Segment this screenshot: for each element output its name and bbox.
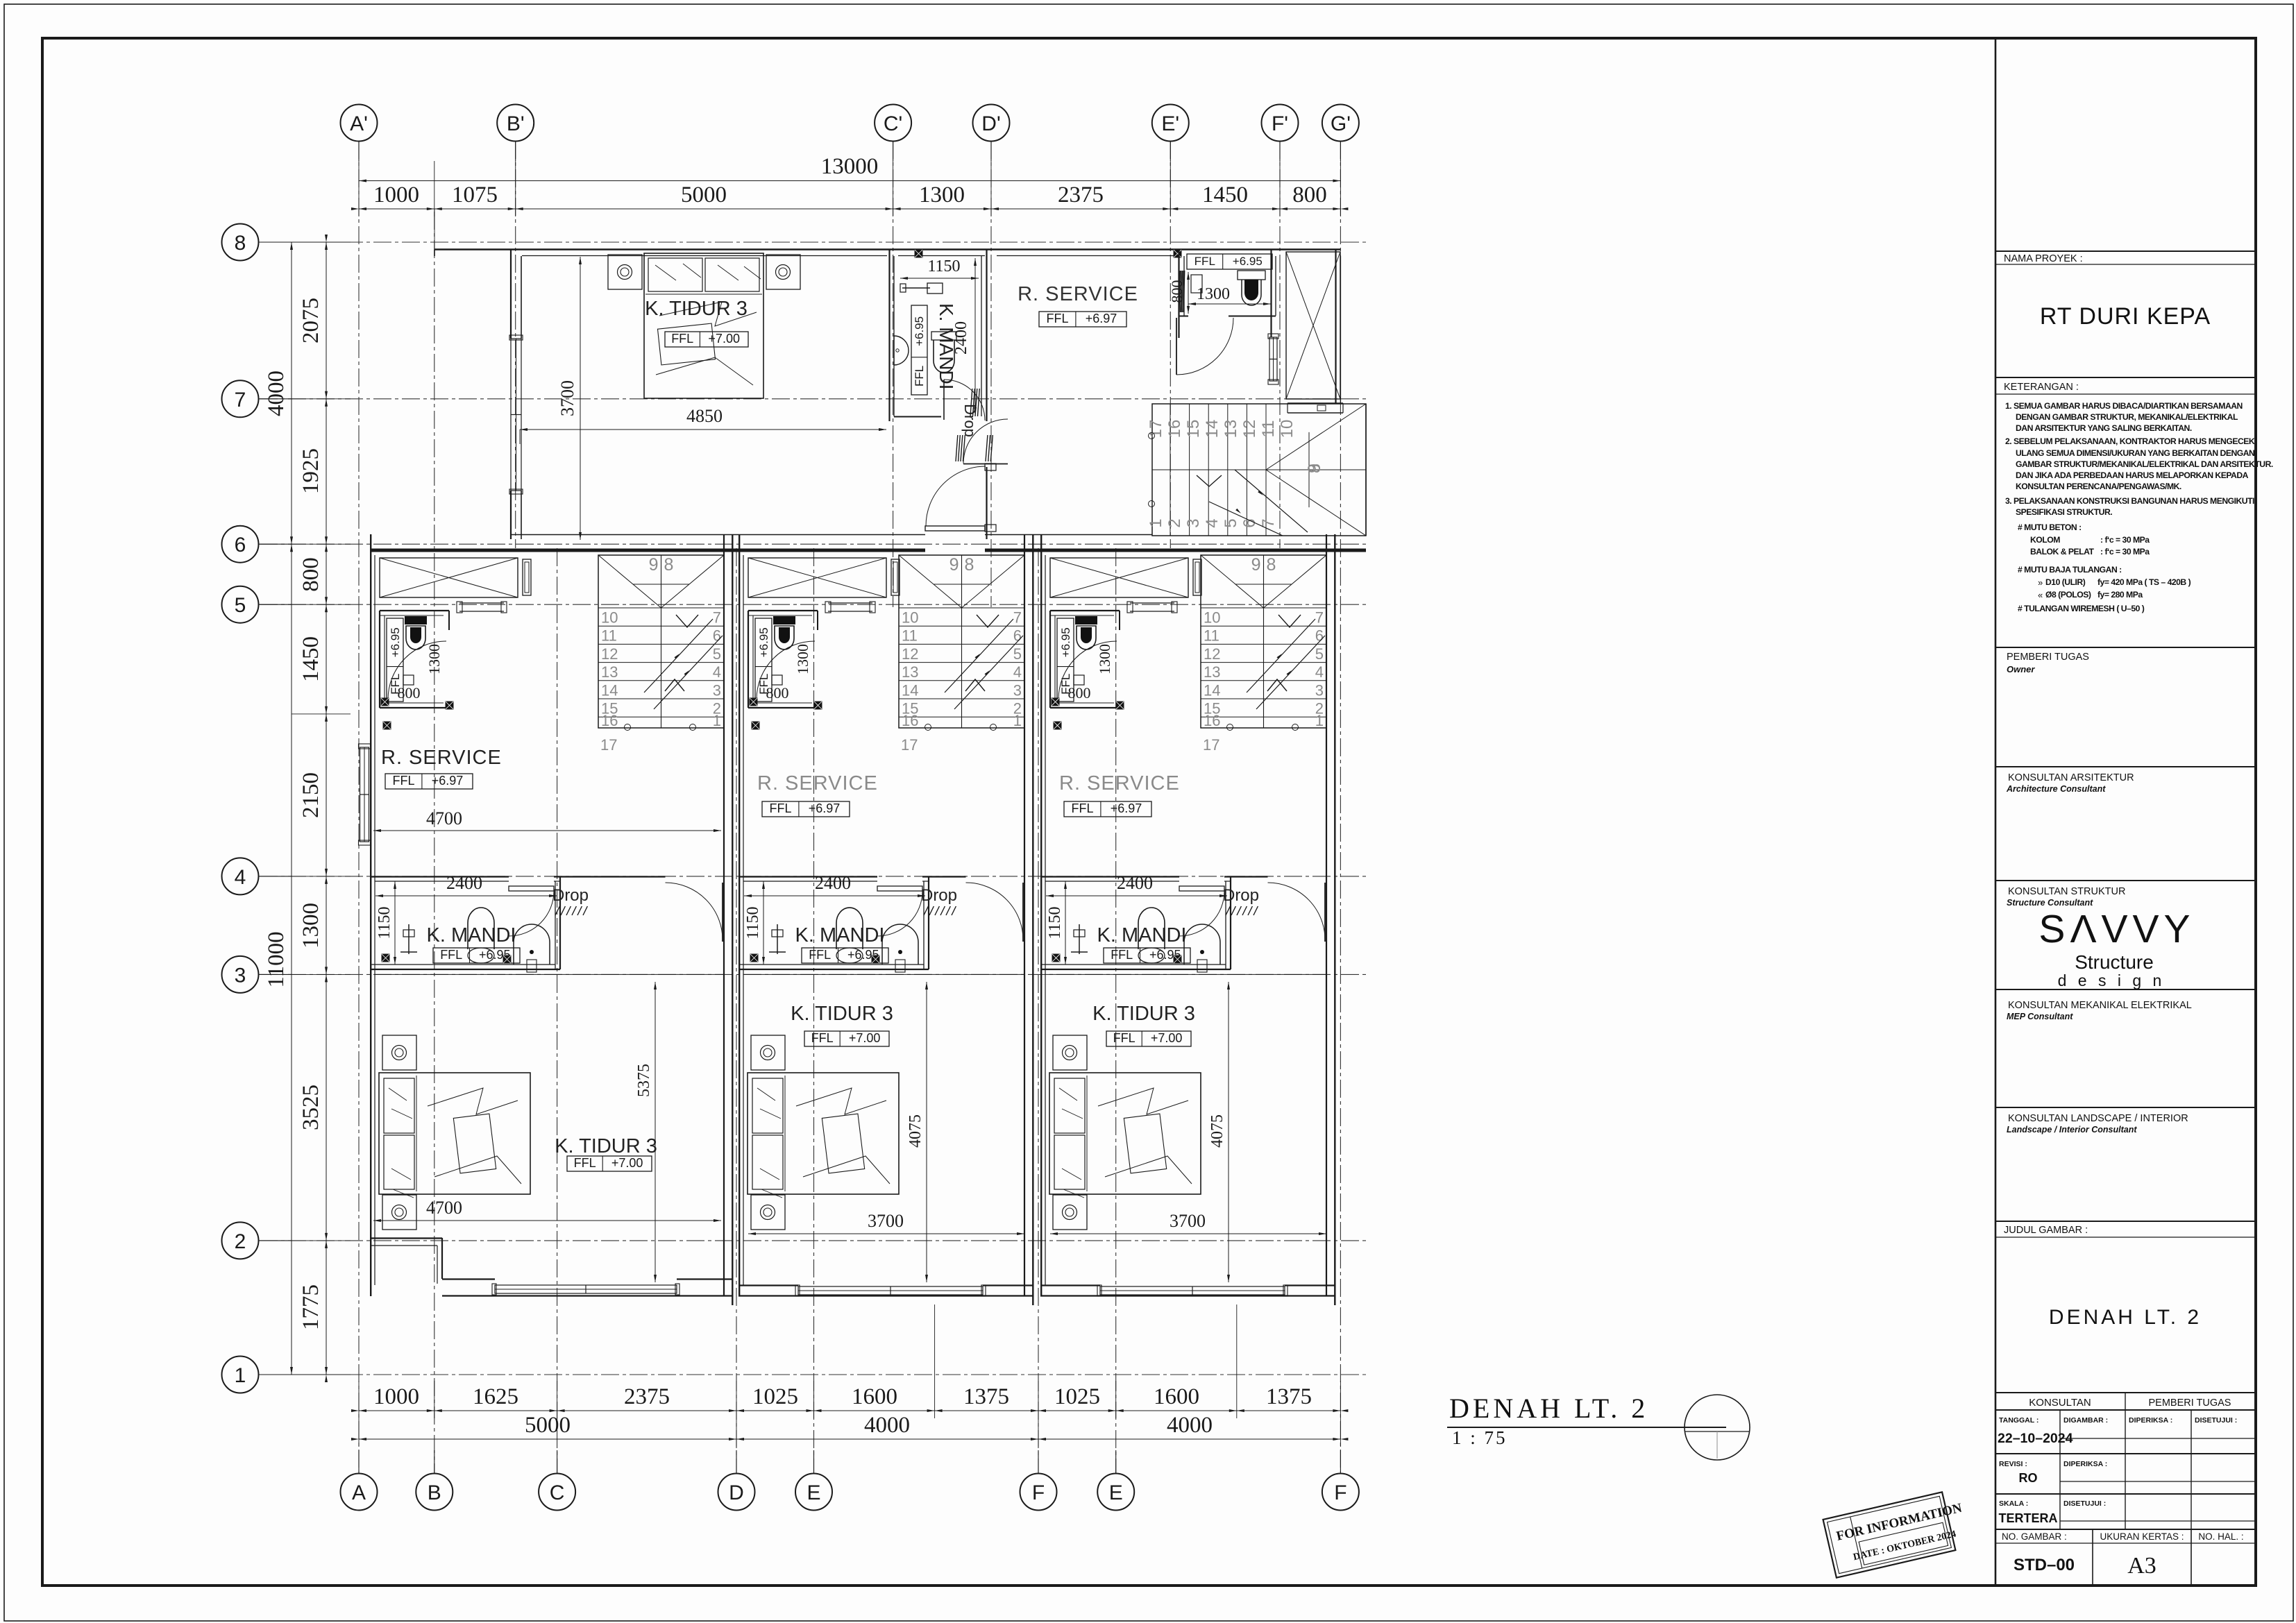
svg-text:d e s i g n: d e s i g n (2058, 971, 2166, 989)
svg-text:+6.97: +6.97 (1086, 312, 1117, 325)
svg-text:E: E (1109, 1481, 1123, 1504)
svg-text:FFL: FFL (1111, 948, 1133, 962)
svg-text:800: 800 (398, 684, 421, 702)
svg-text:KONSULTAN PERENCANA/PENGAWAS/M: KONSULTAN PERENCANA/PENGAWAS/MK. (2016, 482, 2181, 491)
svg-text:5375: 5375 (635, 1064, 653, 1097)
svg-text:F': F' (1272, 112, 1288, 135)
svg-text:K. TIDUR 3: K. TIDUR 3 (1092, 1003, 1195, 1025)
svg-text:9: 9 (1251, 555, 1261, 575)
svg-text:12: 12 (902, 645, 918, 663)
svg-text:+7.00: +7.00 (849, 1031, 881, 1045)
svg-text:KONSULTAN MEKANIKAL ELEKTRIKAL: KONSULTAN MEKANIKAL ELEKTRIKAL (2008, 1000, 2192, 1011)
svg-text:4: 4 (1013, 663, 1022, 681)
svg-text:R. SERVICE: R. SERVICE (757, 772, 878, 794)
svg-text:10: 10 (1204, 609, 1220, 627)
svg-text:7: 7 (1013, 609, 1022, 627)
svg-text:NAMA PROYEK :: NAMA PROYEK : (2004, 253, 2083, 264)
svg-text:14: 14 (902, 681, 918, 699)
svg-text:1150: 1150 (927, 257, 960, 275)
svg-text:14: 14 (1203, 420, 1222, 439)
svg-text:4: 4 (235, 866, 246, 889)
svg-text:KONSULTAN STRUKTUR: KONSULTAN STRUKTUR (2008, 886, 2125, 897)
svg-text:2: 2 (235, 1230, 246, 1253)
svg-text:1300: 1300 (1096, 644, 1113, 674)
svg-text:15: 15 (1184, 420, 1203, 439)
svg-text:16: 16 (1204, 712, 1220, 729)
svg-text:DENAH LT. 2: DENAH LT. 2 (1449, 1393, 1648, 1424)
svg-text:fy= 420 MPa ( TS – 420B ): fy= 420 MPa ( TS – 420B ) (2097, 577, 2191, 587)
svg-text:FFL: FFL (913, 366, 926, 386)
svg-text:6: 6 (235, 534, 246, 556)
svg-text:2400: 2400 (1117, 873, 1153, 893)
svg-text:12: 12 (601, 645, 618, 663)
svg-text:+6.95: +6.95 (913, 316, 926, 346)
svg-text:5: 5 (235, 594, 246, 617)
svg-text:12: 12 (1204, 645, 1220, 663)
svg-text:5: 5 (713, 645, 721, 663)
svg-text:14: 14 (601, 681, 618, 699)
svg-text:R. SERVICE: R. SERVICE (1059, 772, 1180, 794)
svg-text:FFL: FFL (1195, 255, 1215, 268)
svg-text:2400: 2400 (952, 321, 970, 355)
svg-text:K. TIDUR 3: K. TIDUR 3 (791, 1003, 893, 1025)
svg-text:1600: 1600 (1154, 1384, 1199, 1409)
svg-text:2150: 2150 (298, 772, 323, 818)
svg-text:3: 3 (713, 681, 721, 699)
svg-text:TANGGAL :: TANGGAL : (1999, 1416, 2038, 1425)
svg-text:: f‘c = 30 MPa: : f‘c = 30 MPa (2100, 547, 2150, 556)
svg-text:5: 5 (1013, 645, 1022, 663)
svg-text:8: 8 (1267, 555, 1276, 575)
svg-text:1150: 1150 (1046, 906, 1064, 939)
svg-text:8: 8 (1305, 464, 1324, 473)
svg-text:4075: 4075 (1208, 1114, 1226, 1148)
svg-text:SKALA :: SKALA : (1999, 1499, 2028, 1508)
svg-text:FFL: FFL (809, 948, 831, 962)
svg-text:F: F (1334, 1481, 1347, 1504)
svg-text:Landscape / Interior Consul: Landscape / Interior Consultant (2007, 1125, 2137, 1135)
svg-text:DAN ARSITEKTUR YANG SALING BER: DAN ARSITEKTUR YANG SALING BERKAITAN. (2016, 423, 2192, 433)
svg-text:3: 3 (235, 964, 246, 987)
svg-text:TERTERA: TERTERA (1999, 1511, 2058, 1525)
svg-text:4075: 4075 (906, 1114, 925, 1148)
svg-text:1300: 1300 (919, 182, 965, 207)
svg-text:K. MANDI: K. MANDI (427, 924, 516, 946)
svg-text:B': B' (507, 112, 525, 135)
svg-text:1: 1 (1315, 712, 1324, 729)
svg-text:Owner: Owner (2007, 664, 2035, 674)
svg-text:13: 13 (902, 663, 918, 681)
svg-text:«: « (2038, 590, 2043, 600)
svg-text:3. PELAKSANAAN KONSTRUKSI BANG: 3. PELAKSANAAN KONSTRUKSI BANGUNAN HARUS… (2005, 496, 2254, 506)
svg-text:1450: 1450 (1202, 182, 1248, 207)
svg-text:# TULANGAN WIREMESH ( U–50 ): # TULANGAN WIREMESH ( U–50 ) (2018, 604, 2145, 613)
svg-text:3525: 3525 (298, 1085, 323, 1130)
svg-text:G': G' (1331, 112, 1351, 135)
svg-text:DISETUJUI :: DISETUJUI : (2195, 1416, 2237, 1425)
svg-text:KOLOM: KOLOM (2030, 535, 2060, 545)
svg-text:Ø8 (POLOS): Ø8 (POLOS) (2045, 590, 2091, 600)
svg-text:800: 800 (766, 684, 789, 702)
svg-text:PEMBERI TUGAS: PEMBERI TUGAS (2149, 1397, 2231, 1409)
svg-text:2075: 2075 (298, 298, 323, 343)
svg-text:DISETUJUI :: DISETUJUI : (2063, 1499, 2106, 1508)
svg-text:E: E (807, 1481, 820, 1504)
svg-text:13: 13 (1222, 420, 1240, 439)
svg-text:NO. HAL. :: NO. HAL. : (2198, 1531, 2243, 1542)
svg-text:DIPERIKSA :: DIPERIKSA : (2129, 1416, 2172, 1425)
svg-text:10: 10 (902, 609, 918, 627)
svg-text:K. TIDUR 3: K. TIDUR 3 (555, 1135, 657, 1157)
svg-text:13: 13 (601, 663, 618, 681)
svg-text:9: 9 (649, 555, 659, 575)
svg-text:K. MANDI: K. MANDI (795, 924, 885, 946)
svg-text:A': A' (350, 112, 368, 135)
svg-text:4: 4 (713, 663, 721, 681)
svg-text:DIGAMBAR :: DIGAMBAR : (2063, 1416, 2108, 1425)
svg-text:1: 1 (235, 1364, 246, 1387)
svg-text:17: 17 (600, 736, 617, 754)
svg-text:+6.95: +6.95 (757, 627, 770, 657)
svg-text:1000: 1000 (373, 182, 419, 207)
svg-text:JUDUL GAMBAR :: JUDUL GAMBAR : (2004, 1225, 2088, 1236)
svg-text:800: 800 (1068, 684, 1091, 702)
svg-text:C': C' (884, 112, 902, 135)
svg-text:22–10–2024: 22–10–2024 (1998, 1431, 2073, 1446)
svg-text:FFL: FFL (1113, 1031, 1136, 1045)
svg-text:RT DURI KEPA: RT DURI KEPA (2040, 303, 2211, 330)
svg-text:FFL: FFL (574, 1156, 596, 1170)
svg-text:17: 17 (1147, 420, 1165, 439)
svg-text:FFL: FFL (440, 948, 462, 962)
svg-text:fy= 280 MPa: fy= 280 MPa (2097, 590, 2143, 600)
svg-text:11: 11 (1204, 627, 1219, 645)
svg-text:Structure: Structure (2075, 951, 2154, 973)
svg-text:8: 8 (965, 555, 974, 575)
svg-text:3: 3 (1013, 681, 1022, 699)
svg-text:# MUTU BETON :: # MUTU BETON : (2018, 522, 2082, 532)
svg-text:7: 7 (1315, 609, 1324, 627)
svg-text:E': E' (1161, 112, 1179, 135)
svg-text:800: 800 (1292, 182, 1327, 207)
svg-text:MEP Consultant: MEP Consultant (2007, 1012, 2073, 1021)
svg-text:1300: 1300 (1197, 285, 1230, 303)
svg-text:1775: 1775 (298, 1284, 323, 1330)
svg-text:7: 7 (235, 389, 246, 411)
svg-text:4000: 4000 (1167, 1413, 1213, 1438)
svg-text:14: 14 (1204, 681, 1220, 699)
svg-text:4000: 4000 (264, 371, 289, 416)
svg-text:16: 16 (1165, 420, 1184, 439)
svg-text:REVISI :: REVISI : (1999, 1460, 2027, 1468)
svg-text:FFL: FFL (1046, 312, 1068, 325)
svg-text:2: 2 (1165, 518, 1184, 527)
svg-text:1: 1 (1147, 518, 1165, 527)
svg-text:1450: 1450 (298, 636, 323, 682)
svg-text:C: C (550, 1481, 565, 1504)
svg-text:1000: 1000 (373, 1384, 419, 1409)
svg-text:+6.95: +6.95 (1233, 255, 1263, 268)
svg-text:FFL: FFL (392, 774, 414, 788)
svg-text:+6.95: +6.95 (389, 627, 402, 657)
svg-text:Drop: Drop (921, 886, 957, 905)
svg-text:5000: 5000 (681, 182, 727, 207)
svg-text:12: 12 (1240, 420, 1259, 439)
svg-text:1925: 1925 (298, 448, 323, 494)
svg-text:1600: 1600 (852, 1384, 897, 1409)
svg-text:4700: 4700 (426, 808, 462, 829)
svg-text:FFL: FFL (1071, 801, 1093, 815)
svg-text:BALOK & PELAT: BALOK & PELAT (2030, 547, 2095, 556)
svg-text:»: » (2038, 577, 2043, 588)
svg-text:13: 13 (1204, 663, 1220, 681)
svg-text:R. SERVICE: R. SERVICE (1018, 283, 1138, 305)
svg-text:10: 10 (601, 609, 618, 627)
svg-text:3700: 3700 (557, 380, 577, 416)
svg-text:ULANG SEMUA DIMENSI/UKURAN Y: ULANG SEMUA DIMENSI/UKURAN YANG BERKAITA… (2016, 448, 2254, 458)
svg-text:2400: 2400 (446, 873, 482, 893)
svg-text:PEMBERI TUGAS: PEMBERI TUGAS (2007, 652, 2089, 663)
svg-text:11: 11 (1259, 420, 1278, 438)
svg-text:RO: RO (2019, 1471, 2038, 1485)
svg-text:K. MANDI: K. MANDI (1097, 924, 1187, 946)
svg-text:1025: 1025 (752, 1384, 798, 1409)
svg-text:+6.97: +6.97 (432, 774, 464, 788)
svg-text:+6.97: +6.97 (809, 801, 841, 815)
svg-text:1375: 1375 (963, 1384, 1009, 1409)
svg-text:DENAH LT. 2: DENAH LT. 2 (2049, 1306, 2202, 1329)
svg-text:5: 5 (1315, 645, 1324, 663)
svg-text:8: 8 (664, 555, 674, 575)
svg-text:4850: 4850 (686, 406, 723, 426)
svg-text:1150: 1150 (744, 906, 762, 939)
svg-text:DIPERIKSA :: DIPERIKSA : (2063, 1460, 2107, 1468)
svg-text:KONSULTAN: KONSULTAN (2029, 1397, 2091, 1409)
svg-text:NO. GAMBAR :: NO. GAMBAR : (2002, 1531, 2067, 1542)
svg-text:FFL: FFL (671, 332, 693, 346)
svg-text:1300: 1300 (425, 644, 443, 674)
svg-text:4: 4 (1315, 663, 1324, 681)
svg-text:4700: 4700 (426, 1198, 462, 1218)
svg-text:10: 10 (1278, 420, 1297, 439)
svg-text:Architecture Consultant: Architecture Consultant (2006, 784, 2106, 794)
svg-text:5: 5 (1222, 518, 1240, 527)
svg-text:2375: 2375 (624, 1384, 670, 1409)
svg-text:D10 (ULIR): D10 (ULIR) (2045, 577, 2086, 587)
svg-text:Drop: Drop (1223, 886, 1259, 905)
svg-text:11: 11 (902, 627, 918, 645)
svg-text:STD–00: STD–00 (2014, 1556, 2075, 1574)
svg-text:D': D' (981, 112, 1000, 135)
svg-text:5000: 5000 (525, 1413, 571, 1438)
svg-text:Structure Consultant: Structure Consultant (2007, 898, 2093, 908)
svg-text:DENGAN GAMBAR STRUKTUR, MEKANI: DENGAN GAMBAR STRUKTUR, MEKANIKAL/ELEKTR… (2016, 412, 2238, 422)
svg-text:KONSULTAN ARSITEKTUR: KONSULTAN ARSITEKTUR (2008, 772, 2134, 783)
svg-text:3: 3 (1315, 681, 1324, 699)
svg-text:800: 800 (298, 557, 323, 592)
svg-text:11: 11 (601, 627, 617, 645)
svg-text:1. SEMUA GAMBAR HARUS DIBACA/D: 1. SEMUA GAMBAR HARUS DIBACA/DIARTIKAN B… (2005, 401, 2243, 411)
svg-text:1625: 1625 (473, 1384, 518, 1409)
svg-text:11000: 11000 (264, 931, 289, 987)
svg-text:16: 16 (601, 712, 618, 729)
svg-text:D: D (729, 1481, 744, 1504)
svg-text:SPESIFIKASI STRUKTUR.: SPESIFIKASI STRUKTUR. (2016, 507, 2112, 517)
svg-text:# MUTU BAJA TULANGAN :: # MUTU BAJA TULANGAN : (2018, 565, 2122, 575)
svg-text:Drop: Drop (552, 886, 589, 905)
svg-text:1075: 1075 (452, 182, 498, 207)
svg-text:R. SERVICE: R. SERVICE (381, 747, 502, 769)
svg-text:+6.97: +6.97 (1111, 801, 1142, 815)
svg-text:1375: 1375 (1266, 1384, 1312, 1409)
svg-text:9: 9 (949, 555, 959, 575)
svg-text:+7.00: +7.00 (611, 1156, 643, 1170)
svg-text:B: B (428, 1481, 441, 1504)
svg-text:4: 4 (1203, 518, 1222, 527)
svg-text:A: A (352, 1481, 366, 1504)
svg-text:DAN JIKA ADA PERBEDAAN HARUS M: DAN JIKA ADA PERBEDAAN HARUS MELAPORKAN … (2016, 470, 2249, 480)
svg-text:A3: A3 (2127, 1553, 2156, 1579)
svg-text:2400: 2400 (815, 873, 851, 893)
svg-text:UKURAN KERTAS :: UKURAN KERTAS : (2100, 1531, 2184, 1542)
svg-text:2. SEBELUM PELAKSANAAN, KONTR: 2. SEBELUM PELAKSANAAN, KONTRAKTOR HARUS… (2005, 436, 2255, 446)
svg-text:17: 17 (1203, 736, 1219, 754)
svg-text:1300: 1300 (794, 644, 811, 674)
svg-text:GAMBAR STRUKTUR/MEKANIKAL/ELEK: GAMBAR STRUKTUR/MEKANIKAL/ELEKTRIKAL DAN… (2016, 459, 2273, 469)
svg-text:3: 3 (1184, 518, 1203, 527)
svg-text:2375: 2375 (1058, 182, 1104, 207)
svg-text:1025: 1025 (1054, 1384, 1100, 1409)
svg-text:7: 7 (713, 609, 721, 627)
svg-text:KONSULTAN LANDSCAPE / INTERIOR: KONSULTAN LANDSCAPE / INTERIOR (2008, 1113, 2188, 1124)
svg-text:3700: 3700 (868, 1211, 904, 1231)
svg-text:8: 8 (235, 232, 246, 255)
svg-text:1 : 75: 1 : 75 (1452, 1427, 1508, 1448)
svg-text:1300: 1300 (298, 903, 323, 949)
svg-text:F: F (1032, 1481, 1045, 1504)
svg-text:FFL: FFL (811, 1031, 834, 1045)
svg-text:KETERANGAN :: KETERANGAN : (2004, 382, 2079, 393)
svg-text:17: 17 (901, 736, 918, 754)
svg-text:1150: 1150 (375, 906, 394, 939)
svg-text:+7.00: +7.00 (1151, 1031, 1183, 1045)
svg-text:FFL: FFL (769, 801, 791, 815)
svg-text:16: 16 (902, 712, 918, 729)
svg-text:13000: 13000 (821, 154, 879, 179)
svg-text:3700: 3700 (1170, 1211, 1206, 1231)
svg-text:SΛVVY: SΛVVY (2038, 907, 2195, 951)
svg-text:1: 1 (1013, 712, 1022, 729)
svg-text:: f‘c = 30 MPa: : f‘c = 30 MPa (2100, 535, 2150, 545)
svg-text:1: 1 (713, 712, 721, 729)
svg-text:K. TIDUR 3: K. TIDUR 3 (645, 298, 748, 320)
svg-text:4000: 4000 (864, 1413, 910, 1438)
svg-text:+6.95: +6.95 (1059, 627, 1072, 657)
